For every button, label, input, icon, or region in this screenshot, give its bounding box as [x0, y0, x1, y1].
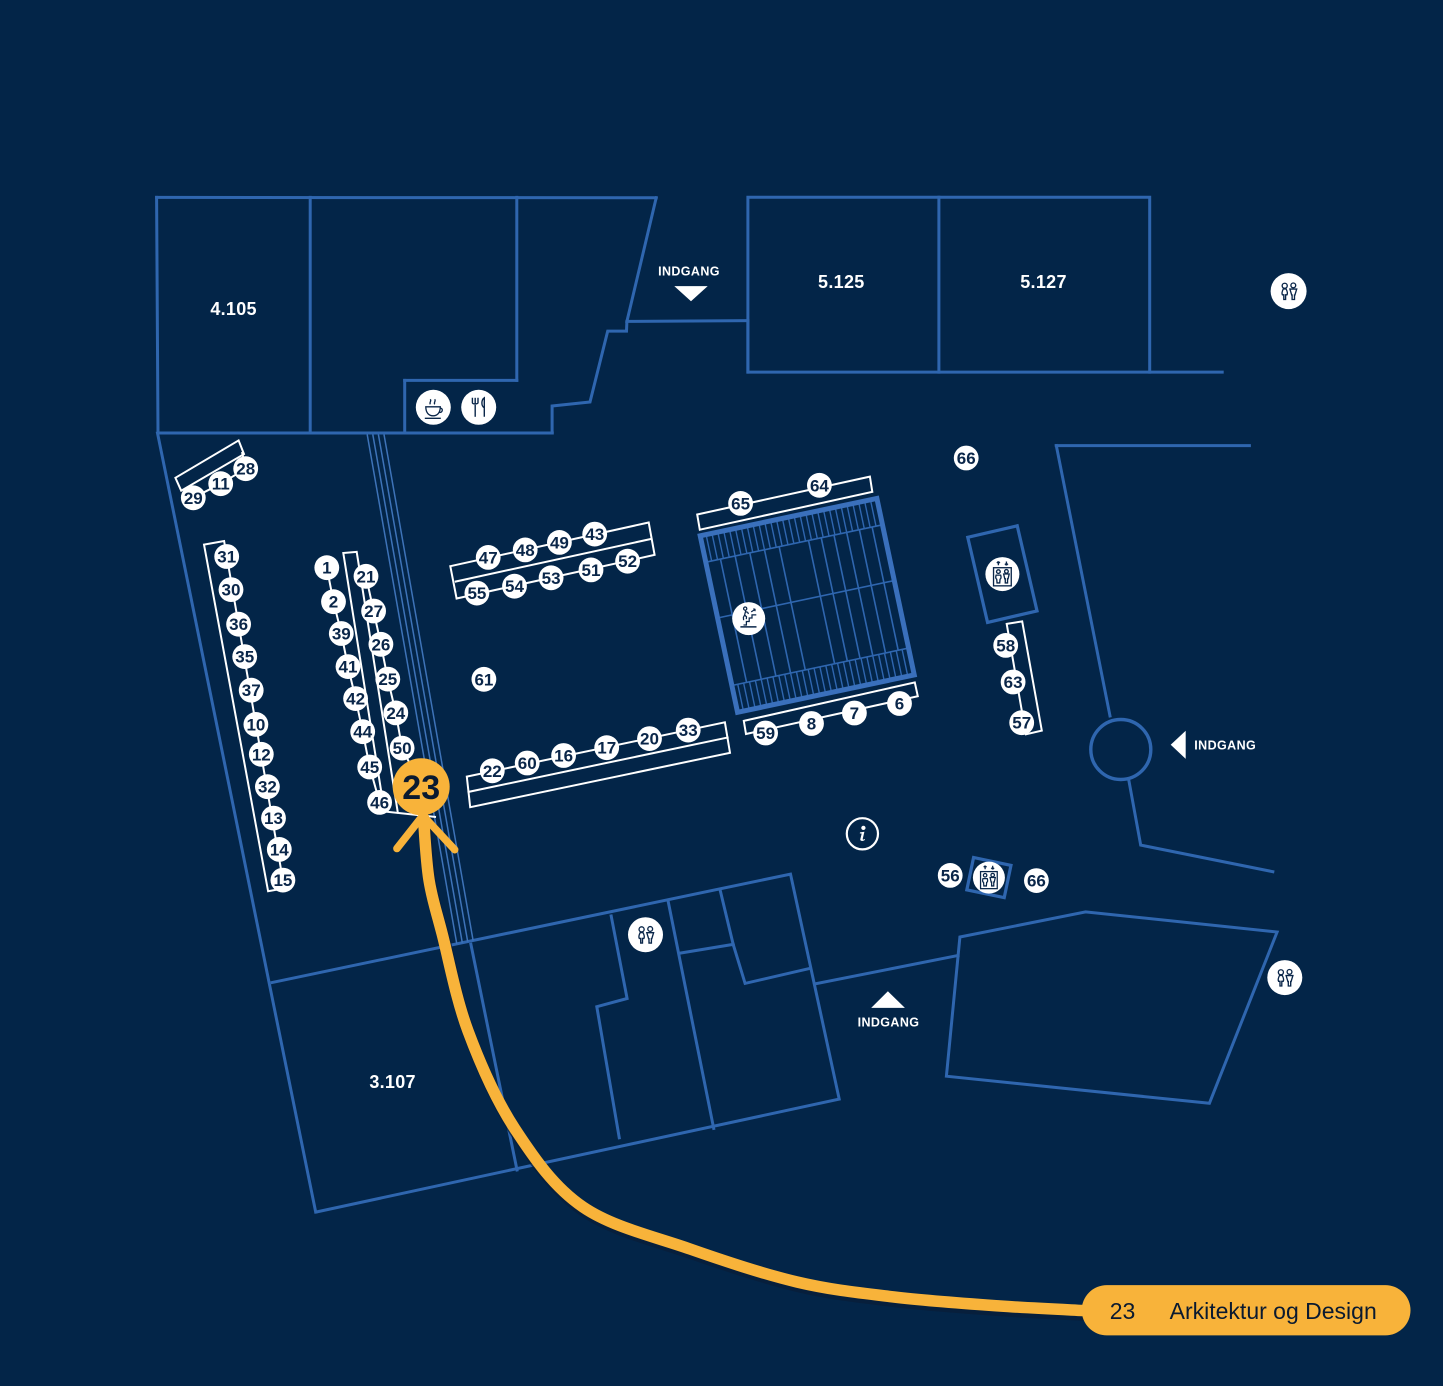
- svg-text:28: 28: [236, 460, 255, 479]
- svg-text:50: 50: [393, 739, 412, 758]
- svg-text:11: 11: [212, 475, 230, 494]
- svg-text:24: 24: [386, 704, 405, 723]
- svg-text:53: 53: [542, 569, 561, 588]
- svg-text:26: 26: [371, 635, 390, 654]
- svg-text:7: 7: [850, 704, 859, 723]
- svg-text:6: 6: [895, 695, 904, 714]
- svg-text:29: 29: [184, 489, 203, 508]
- svg-text:3.107: 3.107: [369, 1072, 416, 1092]
- svg-text:57: 57: [1012, 714, 1031, 733]
- svg-text:5.125: 5.125: [818, 272, 865, 292]
- svg-text:5.127: 5.127: [1020, 272, 1067, 292]
- svg-text:65: 65: [731, 494, 750, 513]
- svg-text:41: 41: [339, 658, 358, 677]
- svg-text:2: 2: [329, 593, 338, 612]
- svg-text:42: 42: [346, 690, 365, 709]
- svg-text:16: 16: [554, 747, 573, 766]
- svg-text:32: 32: [258, 778, 277, 797]
- svg-text:17: 17: [597, 739, 616, 758]
- svg-text:48: 48: [516, 541, 535, 560]
- svg-text:23: 23: [402, 769, 440, 807]
- svg-text:4.105: 4.105: [210, 299, 257, 319]
- svg-text:8: 8: [807, 715, 816, 734]
- svg-text:54: 54: [505, 577, 524, 596]
- svg-text:INDGANG: INDGANG: [1194, 738, 1256, 752]
- svg-text:INDGANG: INDGANG: [658, 265, 720, 279]
- svg-text:46: 46: [370, 793, 389, 812]
- svg-text:25: 25: [378, 670, 397, 689]
- svg-text:59: 59: [756, 724, 775, 743]
- svg-text:61: 61: [474, 670, 493, 689]
- svg-text:63: 63: [1004, 673, 1023, 692]
- svg-text:21: 21: [357, 567, 376, 586]
- svg-text:60: 60: [518, 754, 537, 773]
- svg-text:56: 56: [941, 866, 960, 885]
- svg-text:39: 39: [332, 625, 351, 644]
- svg-text:10: 10: [246, 715, 265, 734]
- svg-text:Arkitektur og Design: Arkitektur og Design: [1170, 1298, 1377, 1324]
- svg-text:33: 33: [679, 721, 698, 740]
- svg-text:55: 55: [467, 584, 486, 603]
- svg-text:31: 31: [217, 548, 236, 567]
- svg-text:44: 44: [353, 723, 372, 742]
- svg-text:43: 43: [585, 525, 604, 544]
- svg-text:37: 37: [242, 681, 261, 700]
- svg-text:51: 51: [582, 561, 601, 580]
- svg-text:30: 30: [222, 581, 241, 600]
- svg-text:45: 45: [360, 758, 379, 777]
- svg-text:20: 20: [640, 730, 659, 749]
- svg-text:66: 66: [957, 449, 976, 468]
- svg-text:36: 36: [229, 615, 248, 634]
- svg-text:49: 49: [550, 533, 569, 552]
- svg-text:58: 58: [996, 636, 1015, 655]
- svg-text:52: 52: [618, 552, 637, 571]
- svg-text:66: 66: [1027, 872, 1046, 891]
- svg-text:15: 15: [273, 871, 292, 890]
- svg-text:14: 14: [270, 840, 289, 859]
- svg-text:27: 27: [364, 602, 383, 621]
- svg-text:12: 12: [252, 745, 271, 764]
- svg-text:23: 23: [1110, 1298, 1136, 1324]
- svg-text:INDGANG: INDGANG: [858, 1016, 920, 1030]
- svg-text:13: 13: [264, 809, 283, 828]
- svg-text:47: 47: [479, 548, 498, 567]
- svg-text:35: 35: [235, 648, 254, 667]
- svg-text:1: 1: [322, 559, 331, 578]
- svg-text:64: 64: [810, 476, 829, 495]
- svg-text:22: 22: [483, 762, 502, 781]
